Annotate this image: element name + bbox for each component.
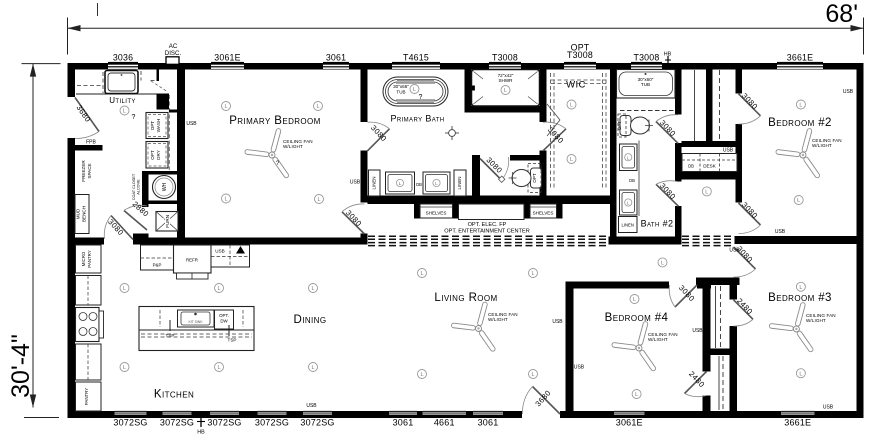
svg-text:LINEN: LINEN xyxy=(457,177,462,190)
svg-text:DESK: DESK xyxy=(703,164,716,169)
svg-text:3072SG: 3072SG xyxy=(300,418,334,428)
svg-text:?: ? xyxy=(419,94,423,101)
svg-text:DRY: DRY xyxy=(156,150,161,160)
svg-text:Primary Bath: Primary Bath xyxy=(390,114,444,124)
svg-text:DB: DB xyxy=(629,178,635,183)
svg-text:T4615: T4615 xyxy=(403,53,429,63)
svg-text:WH: WH xyxy=(162,182,168,191)
svg-text:30"x66": 30"x66" xyxy=(393,84,409,89)
svg-text:3061E: 3061E xyxy=(214,53,240,63)
svg-text:L: L xyxy=(123,109,126,115)
svg-text:3072SG: 3072SG xyxy=(207,418,241,428)
svg-text:AC: AC xyxy=(169,43,178,50)
svg-text:3072SG: 3072SG xyxy=(160,418,194,428)
svg-text:PANTRY: PANTRY xyxy=(87,250,92,267)
svg-text:OPT.: OPT. xyxy=(219,313,229,318)
svg-text:L: L xyxy=(504,88,507,94)
svg-text:L: L xyxy=(413,87,416,93)
svg-text:TSP: TSP xyxy=(228,338,237,343)
svg-text:DISC.: DISC. xyxy=(165,50,182,57)
svg-text:WIC: WIC xyxy=(566,80,586,91)
svg-text:USB: USB xyxy=(574,365,585,371)
svg-text:3661E: 3661E xyxy=(784,418,811,428)
svg-text:L: L xyxy=(317,197,320,203)
svg-text:L: L xyxy=(217,286,220,292)
svg-text:3072SG: 3072SG xyxy=(255,418,289,428)
svg-text:TUB: TUB xyxy=(396,90,405,95)
svg-text:L: L xyxy=(635,392,638,398)
svg-text:USB: USB xyxy=(215,249,224,254)
svg-text:L: L xyxy=(531,372,534,378)
svg-text:LINEN: LINEN xyxy=(622,223,634,228)
svg-text:W/LIGHT: W/LIGHT xyxy=(812,143,832,148)
svg-text:BENCH: BENCH xyxy=(82,206,87,222)
svg-text:4661: 4661 xyxy=(434,418,455,428)
svg-text:L: L xyxy=(570,103,573,109)
svg-text:L: L xyxy=(627,155,630,161)
svg-text:L: L xyxy=(570,157,573,163)
svg-text:USB: USB xyxy=(775,229,786,235)
svg-text:WASH: WASH xyxy=(156,119,161,133)
svg-text:USB: USB xyxy=(823,405,834,411)
svg-text:W/LIGHT: W/LIGHT xyxy=(648,337,668,342)
svg-text:3061: 3061 xyxy=(326,53,346,63)
svg-text:DB: DB xyxy=(688,164,694,169)
svg-text:L: L xyxy=(627,201,630,207)
svg-text:T3008: T3008 xyxy=(492,53,518,63)
svg-text:KIT SINK: KIT SINK xyxy=(188,320,203,324)
svg-text:W/LIGHT: W/LIGHT xyxy=(283,144,303,149)
svg-text:USB: USB xyxy=(843,89,854,95)
svg-text:L: L xyxy=(799,103,802,109)
svg-text:L: L xyxy=(435,181,438,187)
svg-text:T3008: T3008 xyxy=(634,53,660,63)
svg-text:L: L xyxy=(531,271,534,277)
svg-text:L: L xyxy=(420,372,423,378)
svg-text:TUB: TUB xyxy=(641,82,650,87)
svg-text:W/LIGHT: W/LIGHT xyxy=(806,318,826,323)
svg-text:Dining: Dining xyxy=(294,314,327,326)
svg-text:30'-4": 30'-4" xyxy=(7,334,35,398)
svg-text:SHWR: SHWR xyxy=(498,78,513,83)
svg-text:?: ? xyxy=(132,114,136,121)
svg-text:MUD: MUD xyxy=(76,208,81,219)
svg-text:MICRO: MICRO xyxy=(81,251,86,266)
svg-text:PANTRY: PANTRY xyxy=(84,388,89,405)
svg-text:FREEZER: FREEZER xyxy=(81,160,86,182)
svg-text:FPB: FPB xyxy=(86,140,96,146)
svg-text:ALCOVE: ALCOVE xyxy=(137,179,141,195)
svg-text:TSP: TSP xyxy=(166,333,175,338)
svg-text:P&P: P&P xyxy=(153,263,162,268)
svg-text:USB: USB xyxy=(692,328,703,334)
svg-text:OPT: OPT xyxy=(150,121,155,131)
svg-text:Living Room: Living Room xyxy=(434,292,497,304)
svg-text:Bedroom #3: Bedroom #3 xyxy=(768,292,832,304)
svg-text:COAT CLOSET: COAT CLOSET xyxy=(132,173,136,200)
svg-text:L: L xyxy=(311,365,314,371)
svg-text:OPT: OPT xyxy=(532,173,537,183)
svg-text:68': 68' xyxy=(825,0,858,28)
svg-text:USB: USB xyxy=(723,148,734,154)
svg-text:USB: USB xyxy=(552,319,563,325)
svg-text:OPT. ENTERTAINMENT CENTER: OPT. ENTERTAINMENT CENTER xyxy=(444,229,529,235)
svg-text:L: L xyxy=(705,190,708,196)
svg-text:3036: 3036 xyxy=(113,53,133,63)
svg-text:USB: USB xyxy=(729,248,740,254)
svg-text:W/LIGHT: W/LIGHT xyxy=(488,317,508,322)
svg-text:SHELVES: SHELVES xyxy=(533,211,554,216)
svg-text:OPT: OPT xyxy=(150,150,155,160)
svg-text:USB: USB xyxy=(350,180,361,186)
svg-text:Bedroom #2: Bedroom #2 xyxy=(768,117,832,129)
svg-text:USB: USB xyxy=(306,403,317,409)
svg-text:L: L xyxy=(311,286,314,292)
svg-text:Bedroom #4: Bedroom #4 xyxy=(605,312,669,324)
svg-text:DW: DW xyxy=(220,319,228,324)
svg-text:3061: 3061 xyxy=(393,418,414,428)
svg-text:REFR: REFR xyxy=(186,258,198,263)
svg-text:OPT: OPT xyxy=(617,121,622,131)
svg-text:OPT. ELEC. FP: OPT. ELEC. FP xyxy=(468,222,507,228)
svg-text:SPACE: SPACE xyxy=(87,163,92,178)
svg-text:USB: USB xyxy=(186,121,197,127)
svg-text:L: L xyxy=(797,198,800,204)
svg-text:Bath #2: Bath #2 xyxy=(641,219,674,229)
svg-text:HB: HB xyxy=(197,430,205,436)
svg-text:L: L xyxy=(633,297,636,303)
svg-text:Kitchen: Kitchen xyxy=(154,389,194,401)
svg-text:3061: 3061 xyxy=(478,418,499,428)
svg-text:LINEN: LINEN xyxy=(372,177,377,190)
svg-text:L: L xyxy=(224,197,227,203)
svg-text:L: L xyxy=(224,104,227,110)
svg-text:T3008: T3008 xyxy=(567,50,593,60)
svg-text:L: L xyxy=(399,181,402,187)
svg-text:DB: DB xyxy=(416,182,422,187)
svg-text:Primary Bedroom: Primary Bedroom xyxy=(229,115,321,127)
svg-text:3661E: 3661E xyxy=(787,53,813,63)
svg-text:L: L xyxy=(661,261,664,267)
svg-text:L: L xyxy=(799,285,802,291)
svg-text:Utility: Utility xyxy=(109,96,136,105)
svg-text:3072SG: 3072SG xyxy=(113,418,147,428)
svg-text:FURN: FURN xyxy=(165,215,170,228)
svg-text:3061E: 3061E xyxy=(616,418,643,428)
svg-text:L: L xyxy=(420,271,423,277)
svg-text:L: L xyxy=(217,365,220,371)
svg-text:L: L xyxy=(316,104,319,110)
svg-text:L: L xyxy=(123,365,126,371)
svg-text:L: L xyxy=(123,286,126,292)
svg-text:SHELVES: SHELVES xyxy=(426,211,447,216)
svg-text:L: L xyxy=(799,371,802,377)
